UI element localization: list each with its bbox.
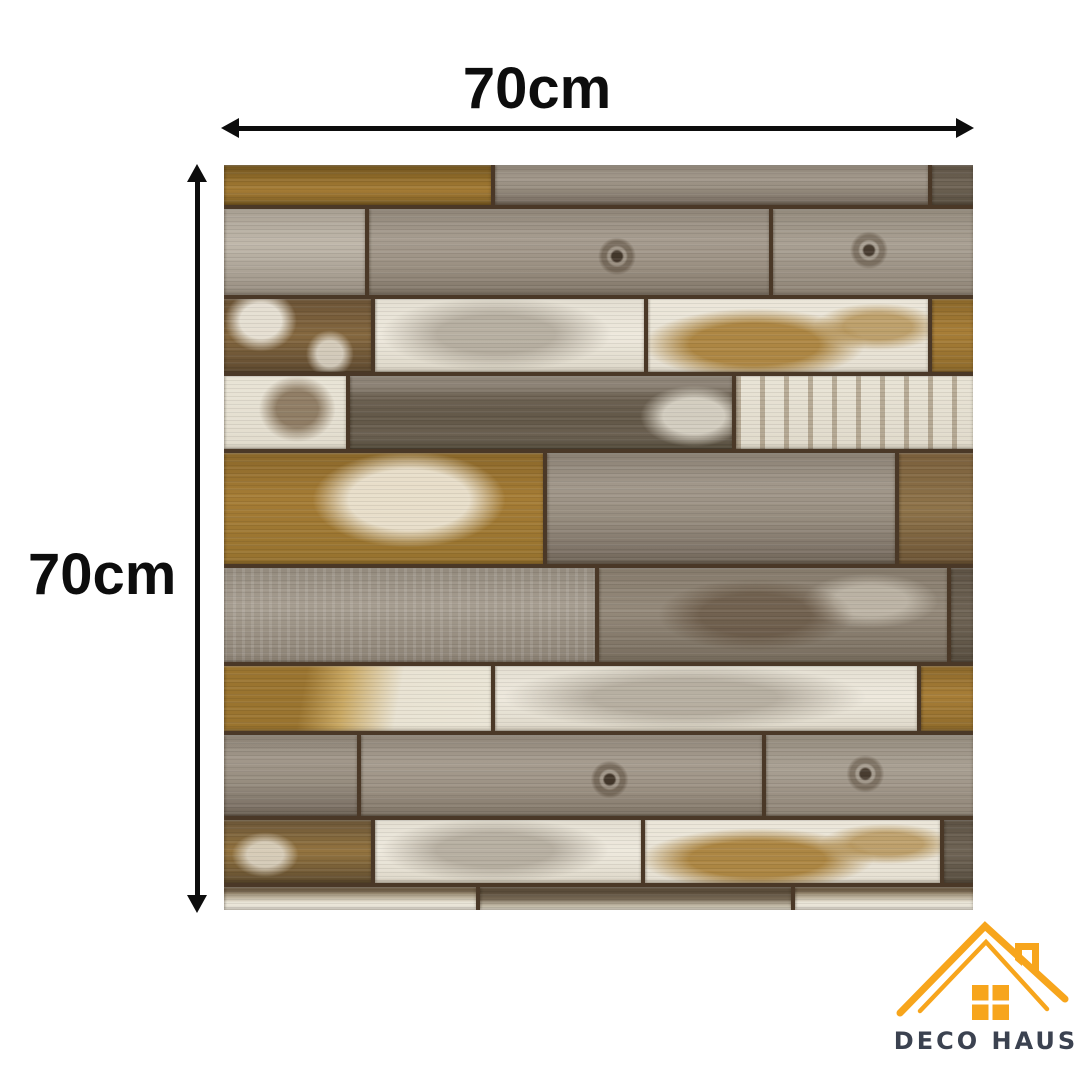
plank-row <box>224 820 973 883</box>
wood-plank <box>224 299 371 372</box>
wood-plank <box>224 735 357 816</box>
wood-plank <box>375 820 640 883</box>
arrowhead-right-icon <box>956 118 974 138</box>
wood-plank <box>375 299 644 372</box>
width-dimension-arrow <box>238 126 957 131</box>
wood-plank <box>224 453 543 564</box>
plank-row <box>224 735 973 816</box>
wood-plank <box>736 376 973 449</box>
plank-row <box>224 209 973 295</box>
wood-plank <box>361 735 761 816</box>
wood-plank <box>495 165 929 205</box>
plank-row <box>224 887 973 910</box>
wood-plank <box>224 666 491 731</box>
wood-plank <box>599 568 947 662</box>
wood-plank <box>224 209 365 295</box>
height-dimension-arrow <box>195 181 200 896</box>
house-roof-icon <box>888 913 1080 1025</box>
height-dimension-label: 70cm <box>28 546 176 604</box>
width-dimension-label: 70cm <box>463 60 611 118</box>
wood-plank <box>648 299 928 372</box>
wood-plank <box>932 165 973 205</box>
wood-plank <box>224 820 371 883</box>
wood-plank <box>224 165 491 205</box>
wood-plank <box>495 666 917 731</box>
wood-plank <box>369 209 769 295</box>
wood-plank <box>224 376 346 449</box>
brand-logo: DECO HAUS <box>888 913 1080 1055</box>
brand-name: DECO HAUS <box>888 1027 1080 1055</box>
plank-row <box>224 666 973 731</box>
window-icon <box>972 985 1009 1020</box>
plank-row <box>224 299 973 372</box>
wood-plank <box>932 299 973 372</box>
wood-plank <box>795 887 973 910</box>
wood-plank <box>766 735 973 816</box>
arrowhead-up-icon <box>187 164 207 182</box>
wood-panel-image <box>224 165 973 910</box>
plank-row <box>224 453 973 564</box>
arrowhead-left-icon <box>221 118 239 138</box>
wood-plank <box>480 887 791 910</box>
wood-plank <box>224 568 595 662</box>
wood-plank <box>547 453 895 564</box>
plank-row <box>224 165 973 205</box>
arrowhead-down-icon <box>187 895 207 913</box>
wood-plank <box>951 568 973 662</box>
wood-plank <box>645 820 940 883</box>
product-dimension-image: 70cm 70cm DECO HAUS <box>0 0 1080 1080</box>
wood-plank <box>350 376 732 449</box>
plank-row <box>224 568 973 662</box>
wood-plank <box>921 666 973 731</box>
wood-plank <box>899 453 973 564</box>
wood-plank <box>944 820 973 883</box>
wood-plank <box>224 887 476 910</box>
plank-row <box>224 376 973 449</box>
wood-plank <box>773 209 973 295</box>
